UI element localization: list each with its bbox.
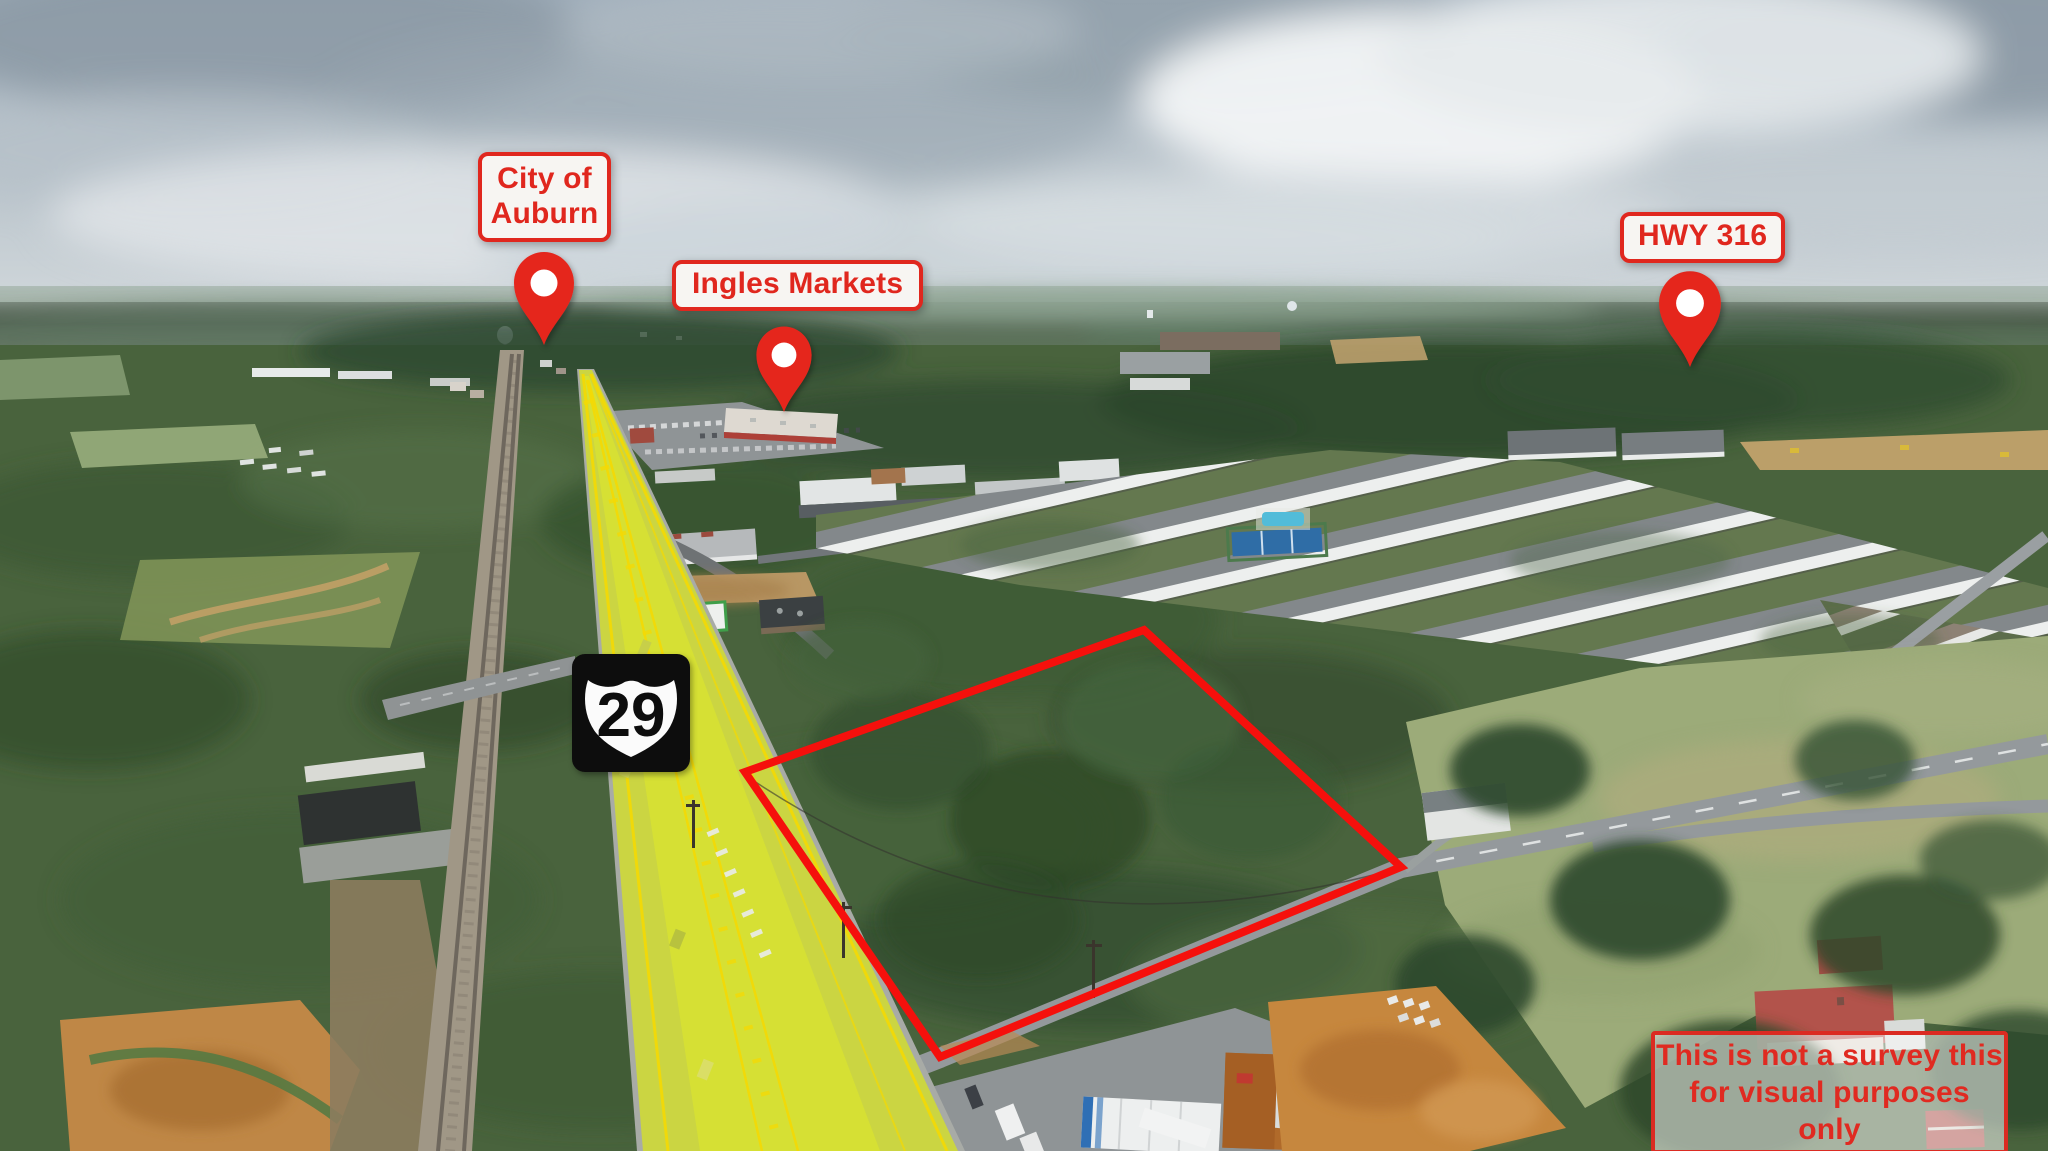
aerial-scene: 29	[0, 0, 2048, 1151]
city-label-line2: Auburn	[482, 196, 607, 231]
dark-roof-building	[759, 596, 825, 634]
hwy-316-label: HWY 316	[1620, 212, 1785, 263]
swimming-pool	[1256, 508, 1310, 530]
ingles-label-text: Ingles Markets	[692, 267, 903, 300]
aerial-property-photo: 29 City of Auburn Ingles Markets HWY 316…	[0, 0, 2048, 1151]
sky	[0, 0, 2048, 310]
city-of-auburn-label: City of Auburn	[478, 152, 611, 242]
ingles-store-building	[724, 408, 838, 444]
disclaimer-line1: This is not a survey this	[1655, 1037, 2004, 1074]
survey-disclaimer: This is not a survey this for visual pur…	[1651, 1031, 2008, 1151]
city-label-line1: City of	[482, 161, 607, 196]
disclaimer-line2: for visual purposes only	[1655, 1074, 2004, 1148]
us-route-29-shield: 29	[572, 654, 690, 772]
hwy-label-text: HWY 316	[1638, 219, 1767, 252]
ingles-markets-label: Ingles Markets	[672, 260, 923, 311]
route-number: 29	[597, 681, 666, 750]
